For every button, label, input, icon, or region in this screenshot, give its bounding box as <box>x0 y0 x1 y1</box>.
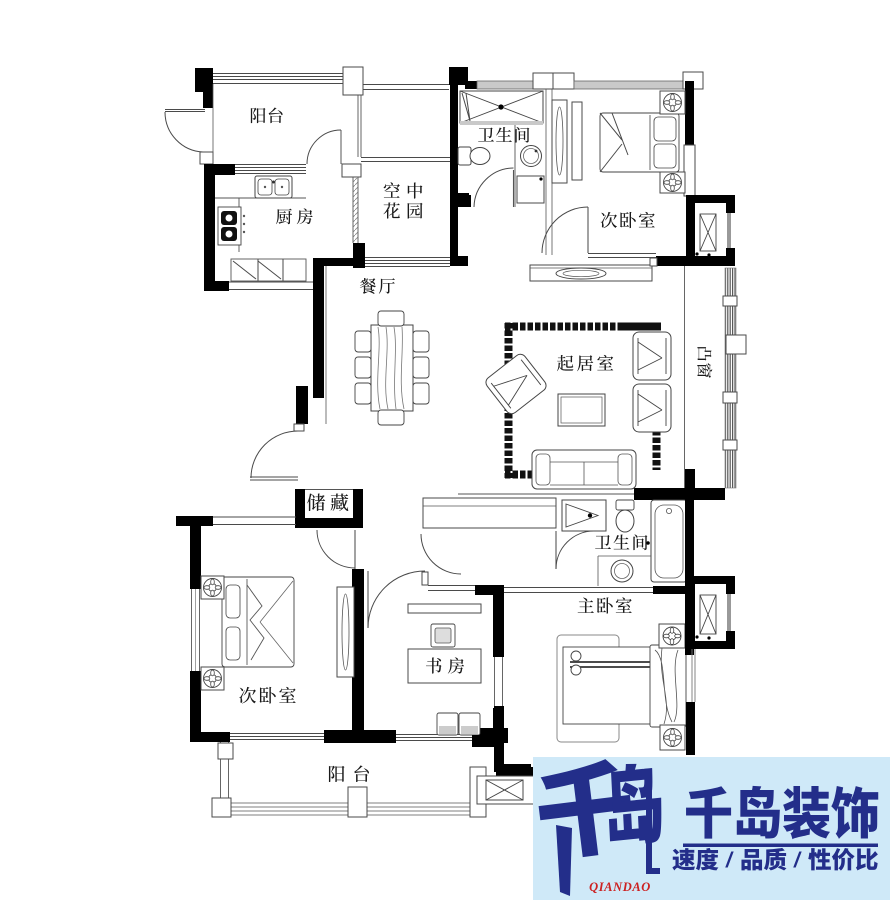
svg-text:QIANDAO: QIANDAO <box>589 880 651 894</box>
